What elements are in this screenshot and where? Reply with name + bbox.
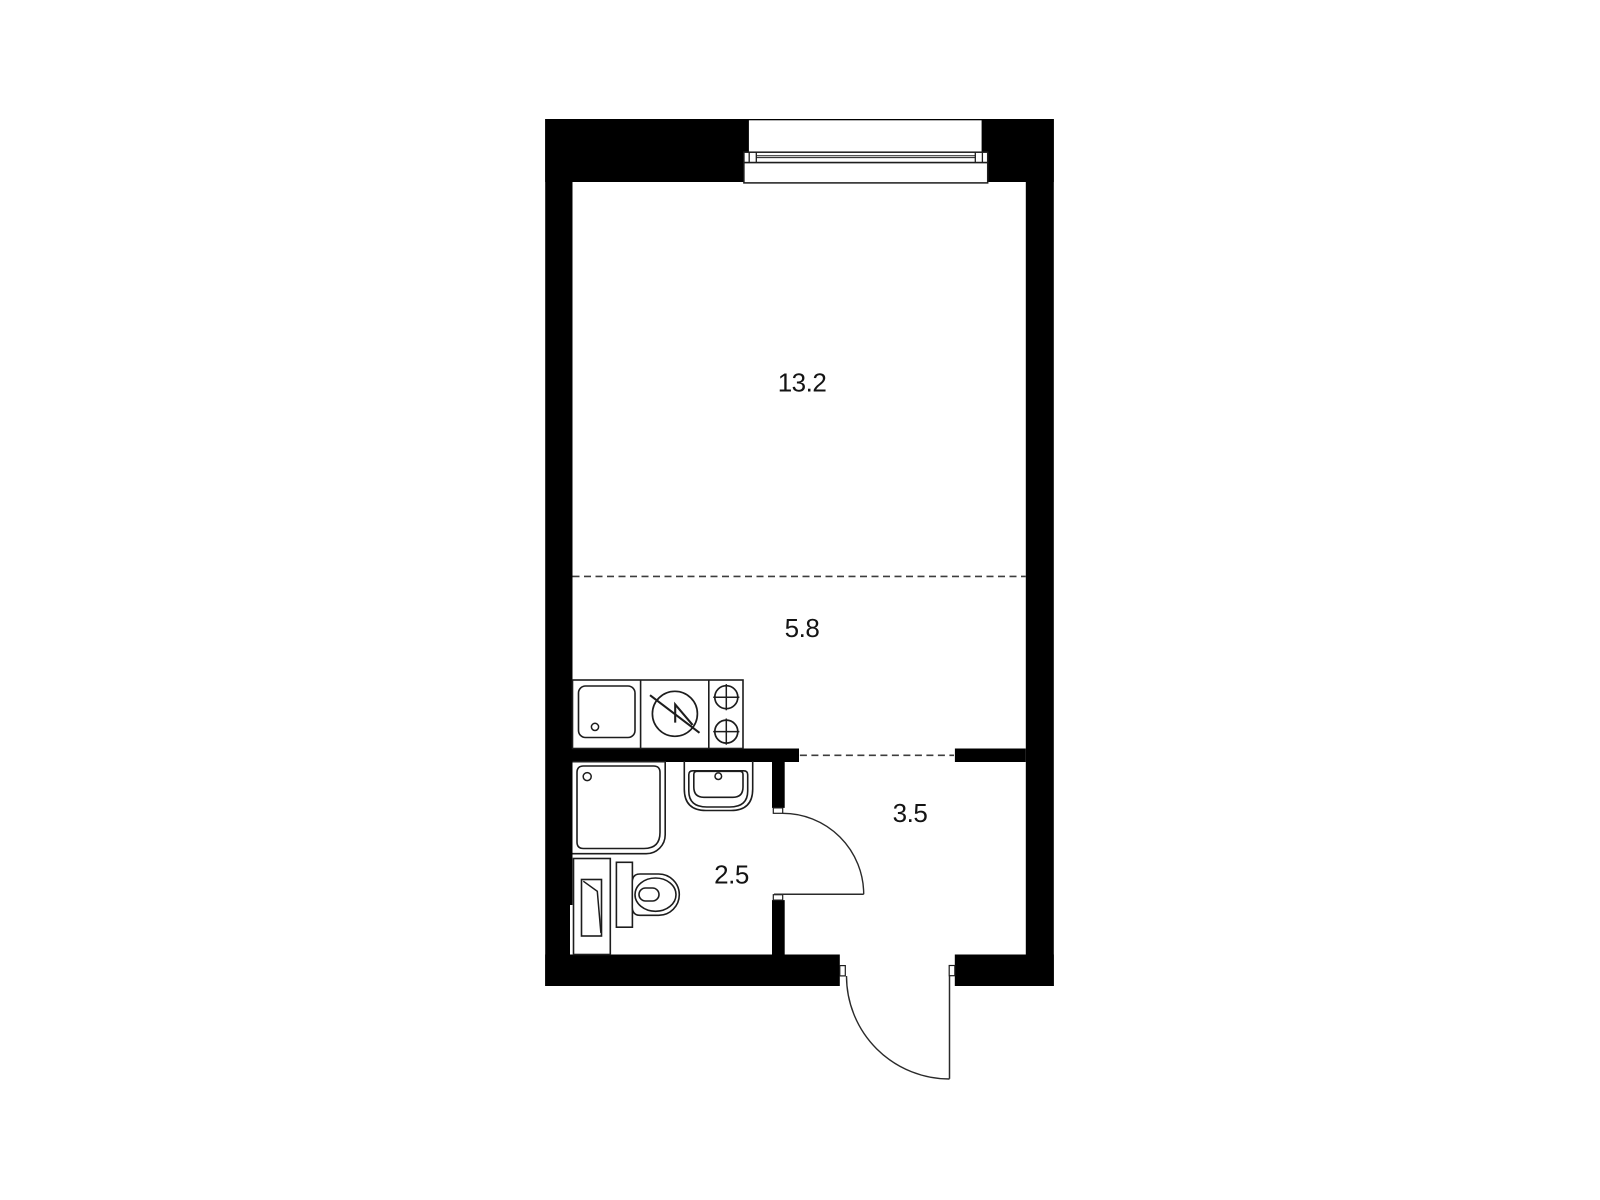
svg-text:5.8: 5.8: [785, 613, 820, 643]
svg-text:3.5: 3.5: [893, 798, 928, 828]
svg-text:2.5: 2.5: [714, 860, 749, 890]
svg-text:13.2: 13.2: [778, 368, 827, 398]
